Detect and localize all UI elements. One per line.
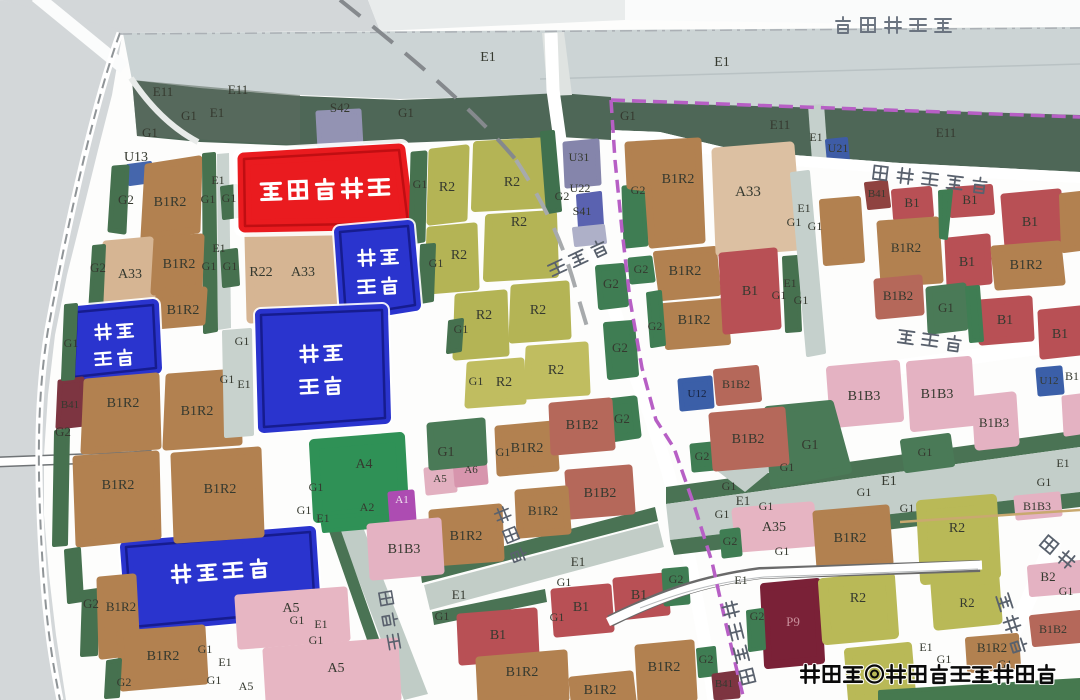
svg-text:B41: B41	[868, 188, 886, 200]
svg-text:G1: G1	[220, 372, 235, 386]
svg-text:B1R2: B1R2	[977, 640, 1007, 655]
svg-text:E1: E1	[571, 554, 585, 569]
svg-text:U13: U13	[124, 150, 148, 165]
svg-text:E1: E1	[452, 587, 466, 602]
svg-text:G1: G1	[550, 610, 565, 624]
svg-text:U31: U31	[569, 150, 590, 164]
svg-text:A4: A4	[355, 457, 372, 472]
svg-text:B1R2: B1R2	[662, 172, 695, 187]
svg-text:R2: R2	[476, 308, 492, 323]
svg-text:G2: G2	[634, 262, 649, 276]
svg-text:E11: E11	[153, 84, 173, 99]
svg-text:S42: S42	[330, 100, 350, 115]
svg-text:E1: E1	[1056, 456, 1069, 470]
svg-text:E11: E11	[936, 125, 956, 140]
svg-text:B41: B41	[61, 399, 79, 411]
svg-text:G1: G1	[222, 191, 237, 205]
svg-text:G1: G1	[201, 192, 216, 206]
svg-text:G1: G1	[309, 633, 324, 647]
svg-text:E1: E1	[736, 493, 750, 508]
svg-text:E1: E1	[797, 201, 810, 215]
svg-text:B1: B1	[904, 195, 919, 210]
svg-text:R2: R2	[451, 248, 467, 263]
svg-text:G2: G2	[118, 192, 134, 207]
svg-text:E1: E1	[480, 50, 496, 65]
svg-text:B1R2: B1R2	[167, 303, 200, 318]
svg-text:E1: E1	[714, 55, 730, 70]
svg-text:R2: R2	[548, 363, 564, 378]
svg-text:E1: E1	[210, 105, 224, 120]
svg-text:G1: G1	[780, 460, 795, 474]
svg-text:G1: G1	[202, 259, 217, 273]
svg-text:B1R2: B1R2	[147, 649, 180, 664]
svg-text:G1: G1	[290, 613, 305, 627]
svg-text:E1: E1	[237, 377, 250, 391]
svg-text:G1: G1	[918, 445, 933, 459]
svg-text:G1: G1	[207, 673, 222, 687]
svg-text:B2: B2	[1040, 569, 1055, 584]
svg-text:B1R2: B1R2	[528, 503, 558, 518]
svg-text:G2: G2	[723, 534, 738, 548]
svg-text:U21: U21	[828, 141, 849, 155]
svg-text:G1: G1	[454, 322, 469, 336]
svg-text:R2: R2	[504, 175, 520, 190]
svg-text:G2: G2	[603, 276, 619, 291]
svg-text:G1: G1	[235, 334, 250, 348]
svg-text:B1R2: B1R2	[154, 195, 187, 210]
svg-text:E1: E1	[919, 640, 932, 654]
svg-text:G1: G1	[808, 219, 823, 233]
svg-text:A5: A5	[433, 473, 447, 485]
svg-text:B1: B1	[490, 628, 506, 643]
svg-text:B1R2: B1R2	[891, 240, 921, 255]
svg-text:B1R2: B1R2	[181, 404, 214, 419]
svg-text:E11: E11	[770, 117, 790, 132]
svg-text:G1: G1	[1059, 584, 1074, 598]
svg-text:G2: G2	[750, 609, 765, 623]
svg-text:B1B3: B1B3	[388, 542, 421, 557]
svg-text:E1: E1	[809, 130, 822, 144]
svg-text:E1: E1	[314, 617, 327, 631]
svg-text:A33: A33	[735, 184, 761, 200]
svg-text:G1: G1	[775, 544, 790, 558]
svg-text:G1: G1	[794, 293, 809, 307]
svg-text:E1: E1	[881, 474, 897, 489]
svg-text:B1: B1	[959, 255, 975, 270]
svg-text:B1R2: B1R2	[584, 683, 617, 698]
svg-text:G1: G1	[772, 288, 787, 302]
svg-text:E11: E11	[228, 82, 248, 97]
svg-text:B1: B1	[962, 192, 977, 207]
svg-text:U22: U22	[570, 181, 591, 195]
svg-text:B1B2: B1B2	[722, 377, 750, 391]
svg-text:G1: G1	[787, 215, 802, 229]
svg-text:B1: B1	[997, 313, 1013, 328]
svg-text:G1: G1	[759, 499, 774, 513]
svg-text:G1: G1	[198, 642, 213, 656]
svg-text:B1R2: B1R2	[102, 478, 135, 493]
svg-text:A6: A6	[464, 464, 478, 476]
svg-text:G1: G1	[297, 503, 312, 517]
svg-text:E1: E1	[212, 241, 225, 255]
svg-text:G1: G1	[557, 575, 572, 589]
svg-text:G1: G1	[620, 108, 636, 123]
svg-text:G1: G1	[398, 105, 414, 120]
svg-text:B1: B1	[631, 588, 647, 603]
svg-text:A5: A5	[239, 679, 254, 693]
svg-text:R2: R2	[850, 591, 866, 606]
svg-text:B41: B41	[715, 678, 733, 690]
svg-text:G1: G1	[309, 480, 324, 494]
svg-text:B1R2: B1R2	[204, 482, 237, 497]
svg-text:B1B3: B1B3	[848, 389, 881, 404]
svg-text:G2: G2	[699, 652, 714, 666]
svg-text:R2: R2	[496, 375, 512, 390]
svg-text:G1: G1	[429, 256, 444, 270]
svg-text:G1: G1	[435, 609, 450, 623]
svg-text:G1: G1	[900, 501, 915, 515]
svg-text:G2: G2	[555, 189, 570, 203]
svg-text:U12: U12	[688, 388, 707, 400]
svg-text:A2: A2	[360, 500, 375, 514]
svg-text:G1: G1	[469, 374, 484, 388]
svg-text:G2: G2	[669, 572, 684, 586]
svg-text:R2: R2	[959, 595, 974, 610]
svg-text:B1: B1	[742, 284, 758, 299]
svg-text:P9: P9	[786, 614, 800, 629]
svg-text:B1B3: B1B3	[921, 387, 954, 402]
svg-text:E1: E1	[218, 655, 231, 669]
svg-text:U12: U12	[1040, 375, 1059, 387]
svg-text:B1B2: B1B2	[883, 288, 913, 303]
svg-text:G2: G2	[695, 449, 710, 463]
svg-text:B1R2: B1R2	[163, 257, 196, 272]
svg-text:R2: R2	[439, 180, 455, 195]
svg-text:R2: R2	[530, 303, 546, 318]
svg-text:G2: G2	[90, 260, 106, 275]
svg-text:G1: G1	[413, 177, 428, 191]
svg-text:B1R2: B1R2	[511, 441, 544, 456]
svg-text:G1: G1	[715, 507, 730, 521]
svg-text:A33: A33	[118, 267, 142, 282]
svg-text:E1: E1	[734, 573, 747, 587]
svg-text:B1R2: B1R2	[678, 313, 711, 328]
svg-text:G1: G1	[64, 336, 79, 350]
svg-text:A33: A33	[291, 265, 315, 280]
svg-text:A1: A1	[395, 494, 408, 506]
svg-text:G1: G1	[437, 445, 454, 460]
svg-text:B1B2: B1B2	[732, 432, 765, 447]
svg-text:B1R2: B1R2	[834, 531, 867, 546]
svg-text:G1: G1	[181, 108, 197, 123]
svg-text:B1: B1	[573, 600, 589, 615]
svg-text:B1R2: B1R2	[107, 396, 140, 411]
svg-text:G2: G2	[648, 319, 663, 333]
svg-text:B1B3: B1B3	[1023, 499, 1051, 513]
svg-text:B1: B1	[1052, 327, 1068, 342]
svg-text:G1: G1	[223, 259, 238, 273]
svg-text:B1R2: B1R2	[669, 264, 702, 279]
svg-text:G1: G1	[801, 438, 818, 453]
svg-text:B1R2: B1R2	[506, 665, 539, 680]
svg-text:S41: S41	[573, 204, 592, 218]
svg-text:B1R2: B1R2	[1010, 258, 1043, 273]
svg-text:B1B2: B1B2	[1039, 622, 1067, 636]
svg-text:R2: R2	[949, 521, 965, 536]
svg-text:B1R2: B1R2	[106, 599, 136, 614]
svg-text:G2: G2	[614, 411, 630, 426]
svg-text:R22: R22	[249, 265, 272, 280]
svg-text:R2: R2	[511, 215, 527, 230]
svg-text:A35: A35	[762, 520, 786, 535]
svg-text:B1: B1	[1022, 215, 1038, 230]
svg-text:G2: G2	[117, 675, 132, 689]
svg-text:E1: E1	[316, 511, 329, 525]
svg-text:G2: G2	[612, 340, 628, 355]
svg-text:G2: G2	[631, 183, 646, 197]
svg-text:G1: G1	[857, 485, 872, 499]
svg-text:B1R2: B1R2	[450, 529, 483, 544]
svg-text:G1: G1	[142, 125, 158, 140]
svg-text:A5: A5	[327, 661, 344, 676]
svg-text:B1B2: B1B2	[566, 418, 599, 433]
svg-text:G2: G2	[55, 424, 71, 439]
svg-text:B1R2: B1R2	[648, 660, 681, 675]
svg-text:G2: G2	[83, 596, 99, 611]
svg-text:G1: G1	[722, 479, 737, 493]
svg-text:E1: E1	[211, 173, 224, 187]
svg-text:B1: B1	[1065, 369, 1079, 383]
svg-text:G1: G1	[1037, 475, 1052, 489]
svg-text:G1: G1	[496, 445, 511, 459]
svg-text:B1B2: B1B2	[584, 486, 617, 501]
svg-text:G1: G1	[938, 300, 954, 315]
svg-text:B1B3: B1B3	[979, 415, 1009, 430]
